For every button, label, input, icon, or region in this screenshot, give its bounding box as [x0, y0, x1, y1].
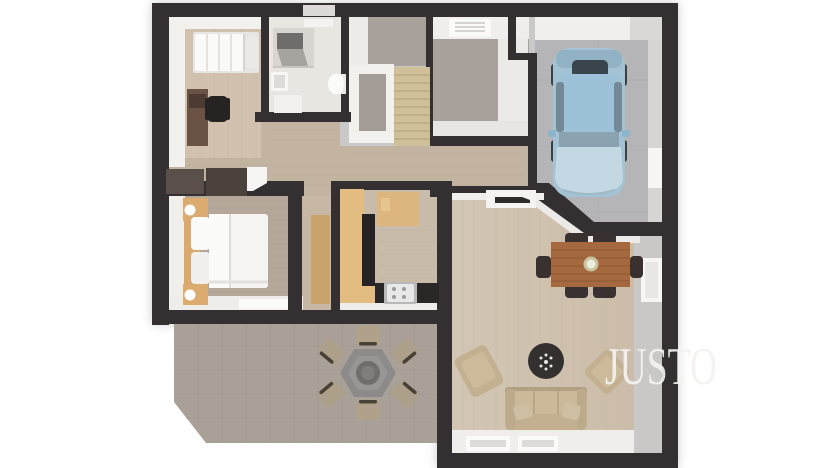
svg-text:JUSTO: JUSTO: [605, 338, 717, 396]
